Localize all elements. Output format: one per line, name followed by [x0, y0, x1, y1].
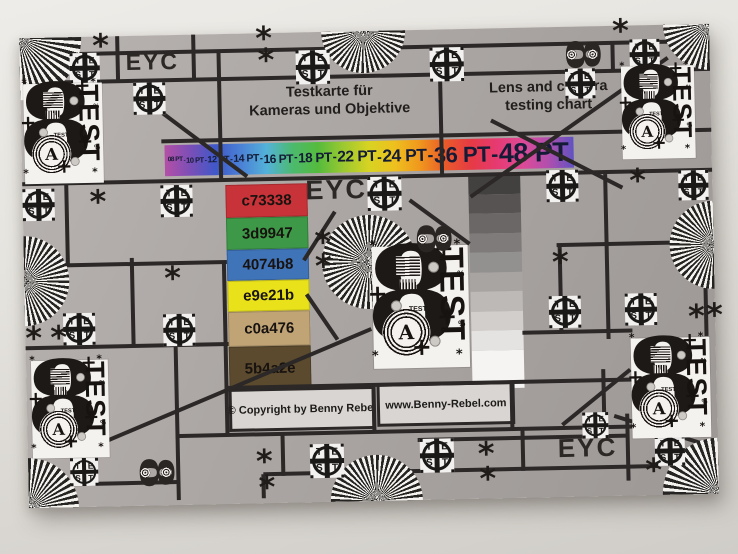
crosshair-corner-dot — [190, 214, 193, 217]
crosshair-bar-v — [36, 189, 41, 221]
crosshair-corner-dot — [164, 343, 167, 346]
mini-asterisk: * — [23, 171, 29, 178]
asterisk-mark: * — [645, 461, 662, 481]
crosshair-corner-dot — [578, 296, 581, 299]
crosshair-corner-dot — [656, 39, 659, 42]
crosshair-bar-v — [444, 47, 450, 81]
resolution-pattern — [399, 279, 416, 289]
crosshair-corner-dot — [310, 444, 313, 447]
mini-asterisk: * — [29, 358, 35, 364]
crosshair-corner-dot — [52, 218, 55, 221]
crosshair-letter: E — [88, 461, 94, 470]
crosshair-corner-dot — [92, 313, 95, 316]
crosshair-letter: T — [554, 300, 560, 310]
crosshair-corner-dot — [565, 96, 568, 99]
crosshair-bar-v — [434, 439, 440, 473]
crosshair-letter: E — [599, 415, 604, 423]
crosshair-letter: T — [154, 101, 160, 111]
crosshair-corner-dot — [63, 313, 66, 316]
asterisk-mark: * — [92, 36, 109, 56]
percent-mark: % — [457, 269, 464, 278]
crosshair-bar-v — [324, 444, 330, 478]
crosshair-letter: T — [599, 427, 604, 435]
test-crosshair-target: TEST — [420, 438, 455, 473]
crosshair-letter: T — [181, 203, 187, 213]
crosshair-letter: S — [684, 188, 690, 197]
crosshair-letter: S — [75, 474, 81, 483]
crosshair-corner-dot — [193, 343, 196, 346]
resolution-pattern — [650, 346, 670, 363]
crosshair-corner-dot — [327, 81, 330, 84]
crosshair-letter: T — [452, 67, 458, 77]
test-crosshair-target: TEST — [22, 189, 55, 222]
test-crosshair-target: TEST — [133, 82, 166, 115]
crosshair-letter: T — [683, 174, 689, 183]
mini-asterisk: * — [21, 81, 27, 88]
diagonal-line — [100, 329, 373, 443]
test-crosshair-target: TEST — [429, 47, 464, 82]
crosshair-corner-dot — [69, 53, 72, 56]
asterisk-mark: * — [479, 469, 496, 489]
percent-mark: % — [93, 102, 99, 110]
plus-mark: + — [28, 391, 44, 407]
crosshair-letter: T — [552, 174, 558, 184]
focus-target-8: 8ATESTTEST++++****%% — [372, 245, 471, 369]
percent-mark: % — [458, 319, 465, 328]
crosshair-letter: T — [630, 297, 636, 307]
crosshair-corner-dot — [678, 170, 681, 173]
crosshair-corner-dot — [549, 296, 552, 299]
asterisk-mark: * — [315, 257, 332, 277]
plus-mark: + — [618, 95, 634, 110]
crosshair-letter: S — [139, 101, 146, 111]
resolution-pattern — [639, 74, 658, 90]
crosshair-corner-dot — [161, 214, 164, 217]
plus-mark: + — [20, 115, 37, 131]
crosshair-letter: T — [698, 187, 704, 196]
crosshair-corner-dot — [576, 199, 579, 202]
crosshair-letter: T — [139, 86, 145, 96]
crosshair-corner-dot — [398, 176, 401, 179]
crosshair-letter: T — [169, 318, 175, 328]
crosshair-corner-dot — [549, 325, 552, 328]
crosshair-corner-dot — [367, 177, 370, 180]
crosshair-corner-dot — [706, 197, 709, 200]
test-small-label: TEST — [649, 111, 663, 117]
crosshair-corner-dot — [163, 111, 166, 114]
percent-mark: % — [701, 357, 707, 365]
crosshair-letter: S — [436, 67, 443, 77]
crosshair-letter: T — [184, 332, 190, 342]
diagonal-line — [307, 294, 338, 341]
crosshair-corner-dot — [582, 413, 585, 416]
asterisk-mark: * — [629, 171, 646, 191]
mini-asterisk: * — [631, 425, 637, 432]
test-crosshair-target: TEST — [163, 314, 196, 347]
resolution-pattern — [642, 91, 655, 99]
crosshair-letter: S — [570, 86, 576, 95]
crosshair-letter: T — [69, 317, 75, 327]
test-crosshair-target: TEST — [70, 458, 99, 487]
mini-asterisk: * — [456, 351, 463, 359]
crosshair-letter: E — [180, 189, 187, 199]
crosshair-corner-dot — [679, 197, 682, 200]
crosshair-corner-dot — [134, 112, 137, 115]
percent-mark: % — [687, 121, 693, 128]
resolution-pattern — [653, 365, 667, 373]
crosshair-corner-dot — [625, 294, 628, 297]
crosshair-letter: T — [436, 51, 442, 61]
crosshair-corner-dot — [575, 170, 578, 173]
diagonal-line — [163, 112, 247, 179]
mini-asterisk: * — [372, 353, 379, 361]
plus-mark: + — [80, 355, 96, 371]
test-small-label: TEST — [54, 132, 69, 138]
crosshair-letter: T — [442, 458, 448, 468]
crosshair-corner-dot — [578, 325, 581, 328]
plus-mark: + — [77, 134, 94, 150]
asterisk-mark: * — [552, 253, 569, 273]
plus-mark: + — [670, 112, 686, 127]
crosshair-corner-dot — [451, 438, 454, 441]
mini-asterisk: * — [698, 334, 704, 341]
test-crosshair-target: TEST — [549, 296, 582, 329]
crosshair-letter: E — [645, 297, 652, 307]
crosshair-letter: S — [373, 196, 380, 206]
crosshair-letter: E — [451, 51, 458, 61]
asterisk-mark: * — [164, 269, 181, 289]
mini-asterisk: * — [98, 444, 104, 450]
crosshair-corner-dot — [606, 435, 609, 438]
resolution-pattern — [46, 111, 60, 119]
small-8-target: 8 — [557, 38, 608, 71]
test-crosshair-target: TEST — [160, 185, 193, 218]
mini-asterisk: * — [621, 147, 626, 153]
crosshair-corner-dot — [368, 208, 371, 211]
test-crosshair-target: TEST — [678, 170, 709, 201]
mini-asterisk: * — [685, 146, 690, 152]
plus-mark: + — [668, 61, 684, 76]
crosshair-corner-dot — [51, 189, 54, 192]
crosshair-letter: T — [316, 448, 322, 458]
crosshair-corner-dot — [629, 39, 632, 42]
test-small-label: TEST — [61, 408, 75, 414]
plus-mark: + — [681, 332, 698, 348]
test-small-label: TEST — [409, 306, 427, 313]
crosshair-letter: S — [587, 427, 592, 435]
crosshair-bar-v — [560, 170, 565, 202]
crosshair-letter: E — [569, 300, 576, 310]
crosshair-letter: T — [318, 70, 324, 80]
small-8-target: 8 — [131, 456, 182, 489]
crosshair-corner-dot — [605, 412, 608, 415]
plus-mark: + — [437, 307, 458, 327]
crosshair-corner-dot — [420, 470, 423, 473]
plus-mark: + — [74, 78, 91, 94]
crosshair-letter: S — [426, 458, 433, 468]
crosshair-corner-dot — [461, 78, 464, 81]
crosshair-bar-v — [593, 412, 597, 438]
crosshair-corner-dot — [654, 293, 657, 296]
crosshair-corner-dot — [460, 47, 463, 50]
crosshair-bar-v — [174, 185, 179, 217]
crosshair-corner-dot — [189, 185, 192, 188]
resolution-pattern — [53, 387, 67, 395]
resolution-pattern — [396, 256, 420, 276]
crosshair-corner-dot — [583, 436, 586, 439]
crosshair-letter: T — [567, 188, 573, 198]
crosshair-letter: E — [43, 193, 50, 203]
crosshair-corner-dot — [296, 81, 299, 84]
test-crosshair-target: TEST — [546, 170, 579, 203]
crosshair-corner-dot — [23, 218, 26, 221]
percent-mark: % — [702, 398, 708, 406]
plus-mark: + — [627, 369, 644, 385]
asterisk-mark: * — [89, 192, 106, 212]
crosshair-letter: E — [389, 180, 396, 190]
crosshair-corner-dot — [310, 475, 313, 478]
crosshair-corner-dot — [399, 207, 402, 210]
crosshair-corner-dot — [682, 462, 685, 465]
crosshair-corner-dot — [546, 170, 549, 173]
test-chart: EYC Testkarte für Kameras und Objektive … — [19, 24, 719, 508]
asterisk-mark: * — [258, 478, 275, 498]
crosshair-corner-dot — [341, 444, 344, 447]
crosshair-letter: E — [331, 448, 338, 458]
mini-asterisk: * — [700, 424, 706, 431]
mini-asterisk: * — [31, 446, 37, 452]
crosshair-corner-dot — [22, 189, 25, 192]
crosshair-letter: T — [674, 453, 680, 462]
asterisk-mark: * — [257, 51, 274, 71]
crosshair-corner-dot — [133, 83, 136, 86]
crosshair-corner-dot — [295, 50, 298, 53]
mini-asterisk: * — [629, 335, 635, 342]
plus-mark: + — [367, 285, 388, 305]
crosshair-letter: S — [316, 464, 323, 474]
crosshair-corner-dot — [192, 314, 195, 317]
crosshair-bar-v — [147, 83, 152, 115]
crosshair-letter: S — [28, 208, 35, 218]
crosshair-letter: T — [43, 207, 49, 217]
crosshair-letter: T — [389, 196, 395, 206]
crosshair-corner-dot — [430, 79, 433, 82]
crosshair-corner-dot — [429, 48, 432, 51]
resolution-pattern — [50, 368, 70, 384]
crosshair-corner-dot — [592, 95, 595, 98]
crosshair-letter: S — [302, 70, 309, 80]
crosshair-corner-dot — [70, 483, 73, 486]
crosshair-bar-v — [82, 458, 87, 486]
crosshair-letter: E — [183, 318, 190, 328]
plus-mark: + — [684, 388, 701, 404]
mini-asterisk: * — [683, 62, 688, 68]
focus-target-8: 8ATESTTEST++++****%% — [631, 337, 712, 439]
crosshair-bar-v — [177, 314, 182, 346]
crosshair-corner-dot — [705, 170, 708, 173]
crosshair-bar-v — [562, 296, 567, 328]
plus-mark: + — [83, 409, 99, 425]
crosshair-letter: T — [570, 72, 576, 81]
crosshair-letter: S — [554, 315, 561, 325]
mini-asterisk: * — [370, 243, 377, 251]
crosshair-corner-dot — [420, 439, 423, 442]
crosshair-letter: E — [83, 317, 90, 327]
test-crosshair-target: TEST — [295, 50, 330, 85]
crosshair-bar-v — [382, 177, 388, 211]
crosshair-letter: E — [153, 86, 160, 96]
crosshair-bar-v — [691, 170, 696, 200]
percent-mark: % — [99, 379, 105, 386]
crosshair-letter: T — [166, 189, 172, 199]
asterisk-mark: * — [706, 306, 723, 326]
crosshair-letter: T — [584, 86, 590, 95]
asterisk-mark: * — [612, 22, 629, 42]
mini-asterisk: * — [619, 64, 624, 70]
crosshair-letter: T — [332, 463, 338, 473]
focus-target-8: 8ATESTTEST++++****%% — [31, 359, 110, 458]
focus-target-8: 8ATESTTEST++++****%% — [23, 83, 104, 185]
crosshair-letter: T — [88, 474, 93, 483]
crosshair-corner-dot — [160, 185, 163, 188]
crosshair-letter: E — [317, 54, 324, 64]
test-crosshair-target: TEST — [582, 412, 609, 439]
crosshair-letter: S — [552, 189, 559, 199]
small-8-target: 8 — [408, 222, 459, 255]
crosshair-letter: E — [441, 442, 448, 452]
crosshair-bar-v — [578, 68, 583, 98]
crosshair-letter: E — [584, 72, 590, 81]
percent-mark: % — [686, 83, 692, 90]
crosshair-letter: T — [426, 443, 432, 453]
resolution-pattern — [43, 92, 63, 109]
mini-asterisk: * — [96, 356, 102, 362]
crosshair-bar-v — [310, 50, 316, 84]
crosshair-letter: T — [569, 314, 575, 324]
test-crosshair-target: TEST — [367, 176, 402, 211]
crosshair-letter: T — [373, 181, 379, 191]
crosshair-corner-dot — [162, 82, 165, 85]
crosshair-corner-dot — [95, 483, 98, 486]
crosshair-letter: T — [28, 193, 34, 203]
crosshair-corner-dot — [326, 50, 329, 53]
percent-mark: % — [100, 419, 106, 426]
crosshair-letter: E — [566, 174, 573, 184]
crosshair-corner-dot — [547, 199, 550, 202]
crosshair-letter: S — [166, 204, 173, 214]
photo-of-camera-test-chart: EYC Testkarte für Kameras und Objektive … — [0, 0, 738, 554]
percent-mark: % — [94, 143, 100, 151]
crosshair-letter: E — [697, 174, 703, 183]
test-crosshair-target: TEST — [310, 444, 345, 479]
test-small-label: TEST — [661, 387, 676, 393]
crosshair-letter: T — [75, 461, 80, 470]
crosshair-letter: S — [169, 333, 176, 343]
crosshair-corner-dot — [163, 314, 166, 317]
mini-asterisk: * — [90, 79, 96, 86]
crosshair-letter: T — [587, 415, 592, 423]
crosshair-corner-dot — [451, 469, 454, 472]
focus-target-8: 8ATESTTEST++++****%% — [621, 65, 696, 159]
test-crosshair-target: TEST — [565, 68, 596, 99]
mini-asterisk: * — [92, 170, 98, 177]
crosshair-corner-dot — [341, 475, 344, 478]
crosshair-letter: T — [302, 54, 308, 64]
